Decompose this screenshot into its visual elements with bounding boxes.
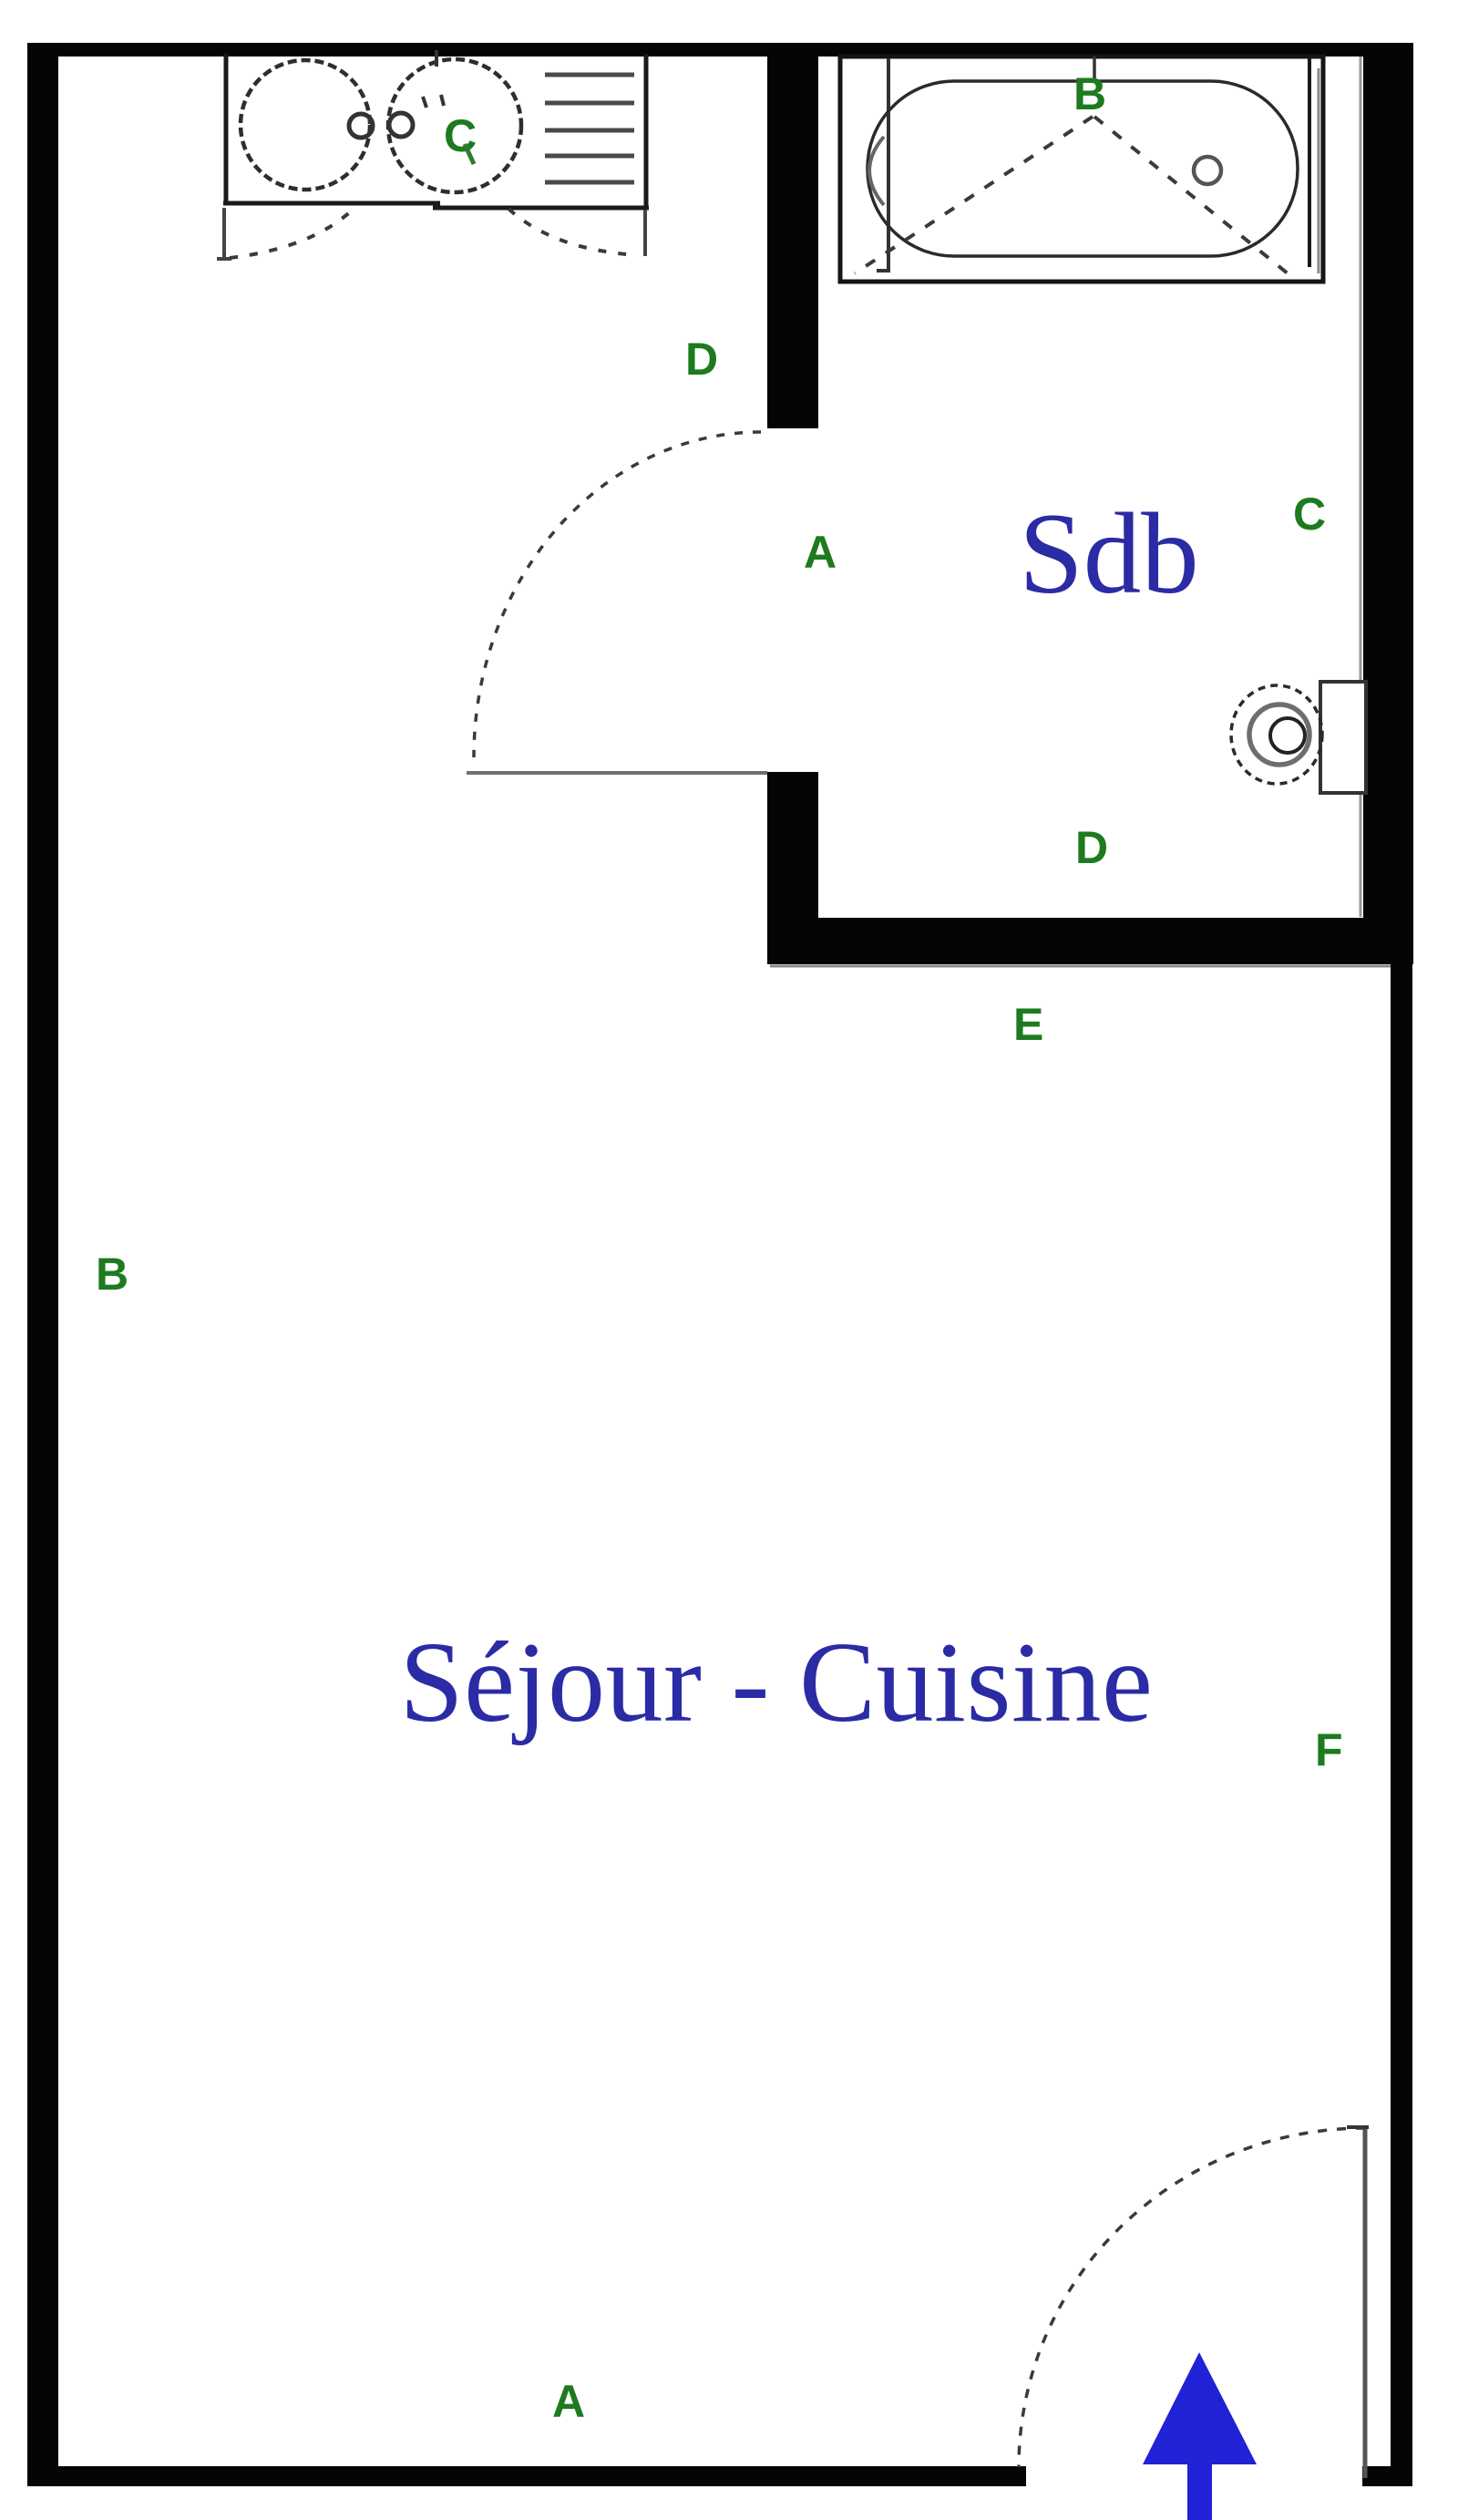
svg-text:Séjour - Cuisine: Séjour - Cuisine: [400, 1620, 1154, 1746]
svg-text:B: B: [1073, 68, 1106, 119]
svg-text:E: E: [1013, 999, 1043, 1050]
svg-text:Sdb: Sdb: [1019, 490, 1199, 618]
svg-text:F: F: [1315, 1724, 1343, 1775]
svg-text:C: C: [1293, 489, 1326, 540]
svg-text:B: B: [96, 1249, 128, 1300]
svg-text:A: A: [552, 2376, 585, 2427]
svg-text:A: A: [804, 527, 837, 578]
svg-text:C: C: [444, 110, 477, 161]
svg-text:D: D: [1075, 822, 1108, 873]
svg-text:D: D: [685, 334, 718, 385]
